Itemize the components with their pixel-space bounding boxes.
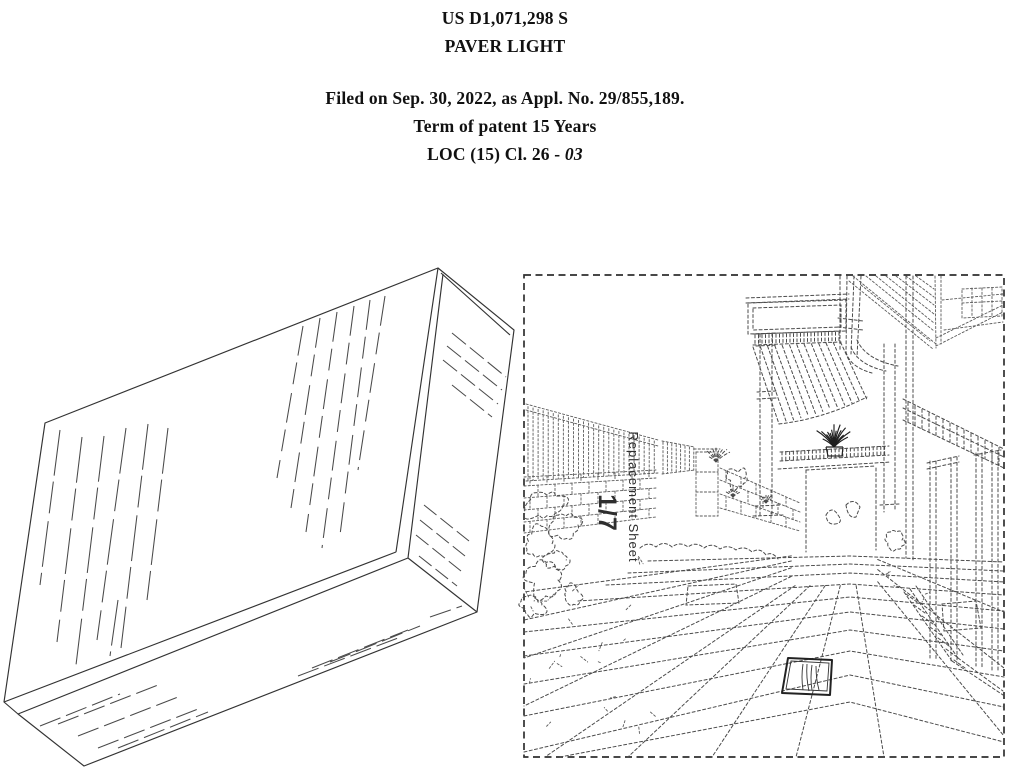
- filed-line: Filed on Sep. 30, 2022, as Appl. No. 29/…: [0, 84, 1010, 112]
- retaining-wall-drawing: [524, 449, 800, 533]
- figure-perspective-view: [4, 268, 514, 766]
- patent-title: PAVER LIGHT: [0, 32, 1010, 60]
- building-wall-doors-drawing: [885, 276, 1004, 695]
- fence-drawing: [526, 404, 695, 481]
- ornamental-grass-plant: [817, 424, 851, 456]
- patent-number: US D1,071,298 S: [0, 4, 1010, 32]
- paver-walkway-grid: [524, 556, 1004, 757]
- front-face-left-shading: [40, 424, 168, 665]
- front-face-middle-shading: [277, 296, 385, 548]
- sheet-number-rotated: 1/7: [593, 494, 621, 532]
- loc-prefix: LOC (15) Cl. 26: [427, 144, 550, 164]
- paver-light-outline: [4, 268, 514, 766]
- figure-environment-view: Replacement Sheet 1/7: [519, 275, 1004, 757]
- document-header: US D1,071,298 S PAVER LIGHT Filed on Sep…: [0, 0, 1010, 168]
- sheet-label-rotated: Replacement Sheet: [626, 431, 641, 562]
- right-face-lower-shading: [416, 505, 469, 586]
- roof-drawing: [849, 276, 1003, 349]
- right-face-upper-shading: [443, 333, 506, 417]
- header-spacer: [0, 60, 1010, 84]
- loc-separator: -: [550, 144, 565, 164]
- loc-class-value: 03: [565, 144, 583, 164]
- shrubs-and-plants-drawing: [519, 447, 778, 617]
- patent-document-page: { "header": { "patent_number": "US D1,07…: [0, 0, 1010, 771]
- bottom-face-shading: [40, 606, 462, 748]
- pergola-porch-drawing: [746, 294, 899, 552]
- term-line: Term of patent 15 Years: [0, 112, 1010, 140]
- loc-line: LOC (15) Cl. 26 - 03: [0, 140, 1010, 168]
